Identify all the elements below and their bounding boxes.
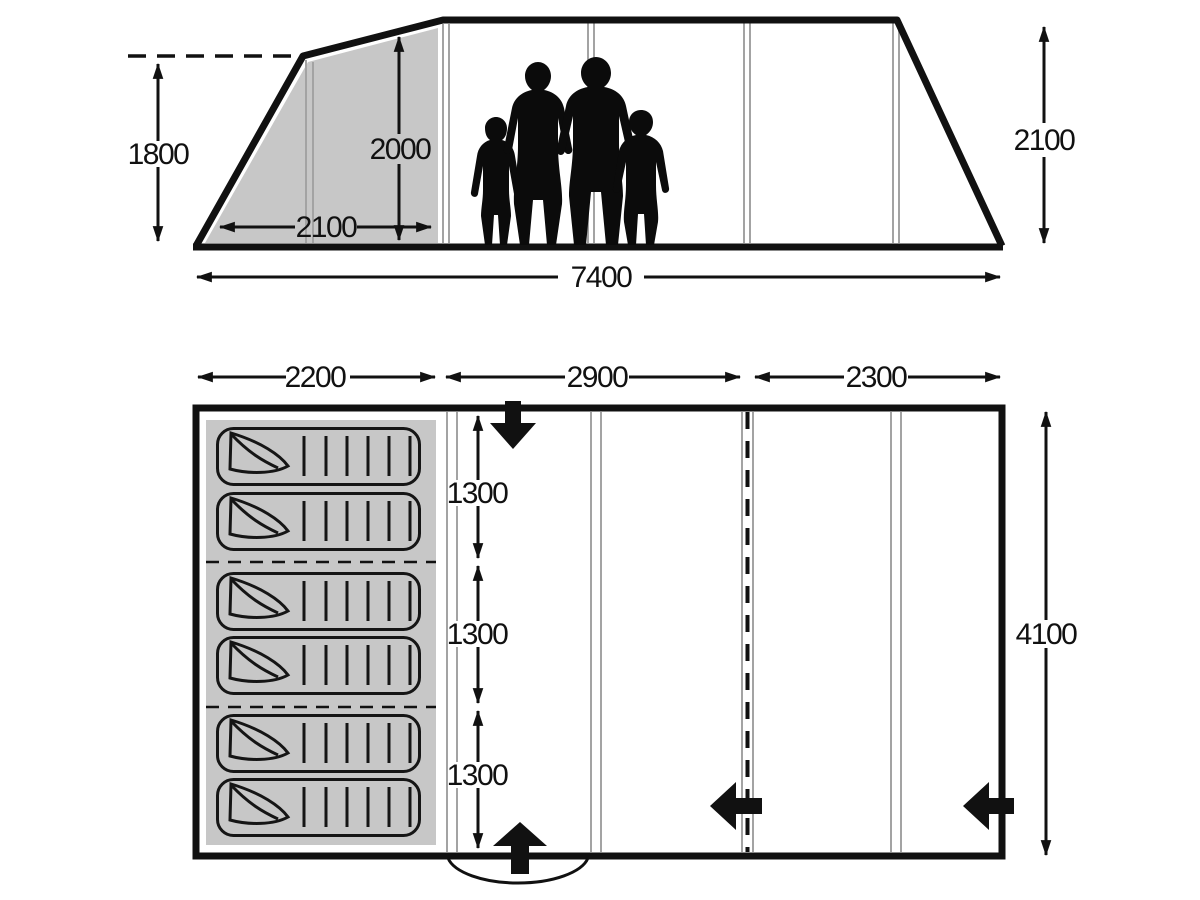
dim-max-height-label: 2100 xyxy=(1014,124,1076,157)
dim-total-width: 4100 xyxy=(1016,412,1078,855)
side-view: 1800 2000 2100 2100 7400 xyxy=(128,20,1076,294)
dim-section-2-label: 2900 xyxy=(567,361,629,394)
dim-porch-depth-label: 2100 xyxy=(296,211,358,244)
boy-silhouette xyxy=(613,110,669,245)
dim-section-1-label: 2200 xyxy=(285,361,347,394)
dim-section-1: 2200 xyxy=(198,361,435,394)
floor-plan: 2200 2900 2300 xyxy=(196,361,1077,883)
dim-berth-1: 1300 xyxy=(447,416,509,558)
dim-front-height-label: 1800 xyxy=(128,138,190,171)
dim-total-length-label: 7400 xyxy=(571,261,633,294)
dim-berth-1-label: 1300 xyxy=(447,477,509,510)
diagram-svg: 1800 2000 2100 2100 7400 xyxy=(0,0,1200,900)
family-silhouette-icon xyxy=(471,57,669,245)
dim-berth-2: 1300 xyxy=(447,566,509,703)
dim-section-2: 2900 xyxy=(446,361,740,394)
side-door-arrow-left-icon xyxy=(963,782,1014,830)
dim-front-height: 1800 xyxy=(128,64,190,241)
dim-inner-height-label: 2000 xyxy=(370,133,432,166)
dim-section-3: 2300 xyxy=(755,361,1000,394)
dim-max-height: 2100 xyxy=(1014,27,1076,243)
dim-berth-3: 1300 xyxy=(447,711,509,848)
inner-door-arrow-left-icon xyxy=(710,782,762,830)
dim-berth-3-label: 1300 xyxy=(447,759,509,792)
dim-berth-2-label: 1300 xyxy=(447,618,509,651)
dim-section-3-label: 2300 xyxy=(846,361,908,394)
bottom-entrance-arrow-up-icon xyxy=(493,822,547,874)
tent-dimensions-diagram: 1800 2000 2100 2100 7400 xyxy=(0,0,1200,900)
floorplan-pole-lines xyxy=(447,412,901,852)
dim-total-length: 7400 xyxy=(197,261,1000,294)
dim-total-width-label: 4100 xyxy=(1016,618,1078,651)
